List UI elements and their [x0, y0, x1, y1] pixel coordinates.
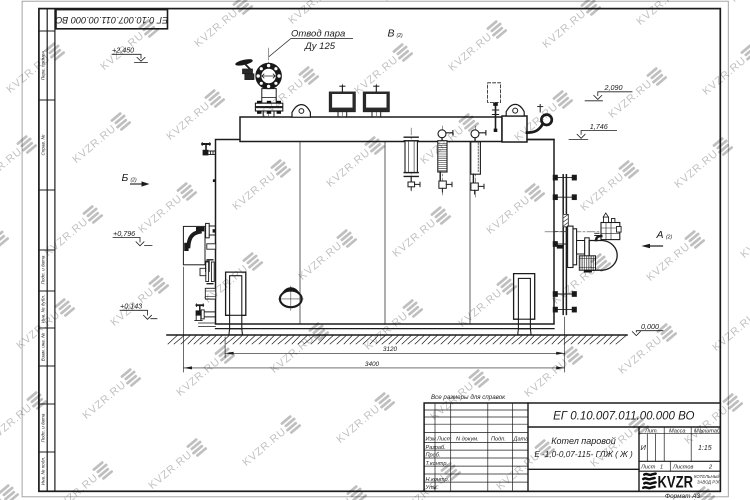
svg-text:KVZR: KVZR: [658, 473, 694, 492]
svg-text:Подп. и дата: Подп. и дата: [41, 255, 46, 284]
svg-text:N докум.: N докум.: [456, 437, 479, 443]
svg-text:Масса: Масса: [669, 429, 686, 435]
svg-text:(2): (2): [397, 33, 403, 39]
svg-text:Лист: Лист: [436, 437, 452, 443]
svg-text:Инв. № подл.: Инв. № подл.: [41, 457, 46, 486]
svg-text:А: А: [656, 229, 664, 241]
svg-text:Взам. инв. №: Взам. инв. №: [41, 333, 46, 361]
svg-text:2,090: 2,090: [604, 83, 623, 92]
svg-text:3400: 3400: [365, 361, 380, 368]
svg-text:Подп.: Подп.: [491, 437, 506, 443]
svg-text:Т.контр.: Т.контр.: [426, 461, 449, 467]
svg-text:Подп. и дата: Подп. и дата: [41, 413, 46, 442]
svg-text:Разраб.: Разраб.: [426, 445, 446, 451]
svg-text:1:15: 1:15: [698, 445, 712, 452]
svg-text:1: 1: [660, 465, 663, 471]
svg-text:И: И: [641, 443, 647, 452]
svg-text:0,000: 0,000: [641, 322, 659, 331]
svg-text:(2): (2): [666, 235, 672, 241]
svg-text:ЗАВОД РЭП: ЗАВОД РЭП: [697, 480, 722, 485]
svg-text:Ду 125: Ду 125: [304, 41, 336, 52]
svg-text:ЕГ 0.10.007.011.00.000 ВО: ЕГ 0.10.007.011.00.000 ВО: [553, 411, 694, 423]
svg-text:КОТЕЛЬНЫЙ: КОТЕЛЬНЫЙ: [694, 474, 720, 479]
svg-text:Отвод пара: Отвод пара: [291, 29, 345, 40]
svg-text:Изм: Изм: [426, 437, 437, 443]
svg-text:Проб.: Проб.: [426, 453, 441, 459]
svg-text:Дата: Дата: [513, 437, 529, 443]
svg-text:+0,796: +0,796: [113, 229, 135, 238]
svg-text:(2): (2): [131, 178, 137, 184]
svg-text:3120: 3120: [383, 346, 398, 353]
svg-text:Справ. №: Справ. №: [41, 135, 46, 156]
svg-text:Лист: Лист: [640, 465, 656, 471]
svg-text:1,746: 1,746: [590, 122, 608, 131]
svg-text:Б: Б: [122, 172, 129, 184]
svg-text:Листов: Листов: [672, 465, 693, 471]
svg-text:В: В: [388, 28, 395, 40]
